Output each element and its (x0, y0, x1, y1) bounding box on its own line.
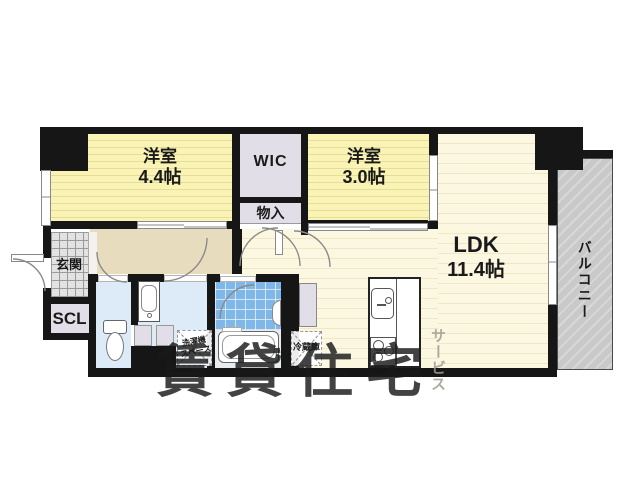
closet-name: 物入 (257, 205, 285, 221)
wall-bedroom2-right-top (429, 134, 438, 155)
wall-right-upper (548, 168, 557, 225)
label-balcony: バルコニー (576, 228, 593, 332)
label-bedroom1: 洋室 4.4帖 (95, 147, 225, 189)
window-bedroom2-right (429, 155, 438, 221)
wall-balcony-top (583, 150, 613, 158)
wall-top (40, 127, 583, 134)
entrance-door-leaf (11, 254, 44, 262)
hallway-floor (90, 229, 232, 274)
doorway-toilet (98, 275, 128, 282)
bathroom-tiles (215, 282, 281, 330)
bath-counter (272, 300, 281, 326)
scl-name: SCL (53, 309, 87, 328)
sliding-door-bedroom1 (137, 221, 227, 229)
doorway-bathroom (220, 276, 256, 282)
label-bedroom2: 洋室 3.0帖 (300, 147, 428, 189)
bedroom1-name: 洋室 (95, 147, 225, 167)
wall-wic-closet (240, 197, 301, 203)
wall-bedroom1-wic (232, 134, 240, 229)
entrance-name: 玄関 (56, 257, 82, 272)
bedroom1-size: 4.4帖 (95, 167, 225, 189)
watermark-main: 賃貸住宅 (156, 326, 436, 408)
bedroom2-size: 3.0帖 (300, 167, 428, 189)
ldk-size: 11.4帖 (400, 258, 552, 282)
wall-right-lower (548, 305, 557, 371)
pillar-top-right (535, 127, 583, 170)
washbasin-faucet (147, 313, 152, 318)
wall-left-a (43, 225, 51, 258)
wall-left-b (43, 288, 51, 297)
wall-toilet-washroom (131, 282, 138, 325)
sliding-door-bedroom2 (308, 223, 428, 231)
label-ldk: LDK 11.4帖 (400, 232, 552, 282)
wall-bedroom1-bottom-left (51, 221, 137, 229)
refrigerator-cabinet (299, 283, 317, 327)
wall-hall-ldk (232, 229, 242, 274)
wic-name: WIC (253, 153, 287, 170)
closet-door-leaf (275, 230, 283, 255)
pillar-top-left (40, 127, 88, 171)
window-left (41, 170, 51, 226)
washbasin-sink (141, 285, 157, 312)
arc-entrance-door (13, 259, 45, 291)
doorway-washroom (164, 275, 207, 282)
label-entrance: 玄関 (48, 257, 90, 273)
ldk-name: LDK (400, 232, 552, 258)
floor-plan: 洋室 4.4帖 WIC 物入 洋室 3.0帖 LDK 11.4帖 玄関 SCL … (0, 0, 640, 480)
label-wic: WIC (240, 152, 301, 171)
toilet-bowl (106, 332, 124, 361)
label-scl: SCL (43, 309, 96, 329)
bedroom2-name: 洋室 (300, 147, 428, 167)
balcony-name: バルコニー (577, 240, 593, 320)
wall-bedroom1-bottom-right (227, 221, 232, 229)
label-closet: 物入 (240, 205, 301, 222)
washroom-cabinet-left (134, 325, 152, 346)
kitchen-faucet (385, 297, 392, 304)
kitchen-faucet-handle (377, 304, 386, 306)
wall-hall-bottom-c (207, 274, 220, 282)
watermark-sub: サービス (427, 328, 448, 392)
